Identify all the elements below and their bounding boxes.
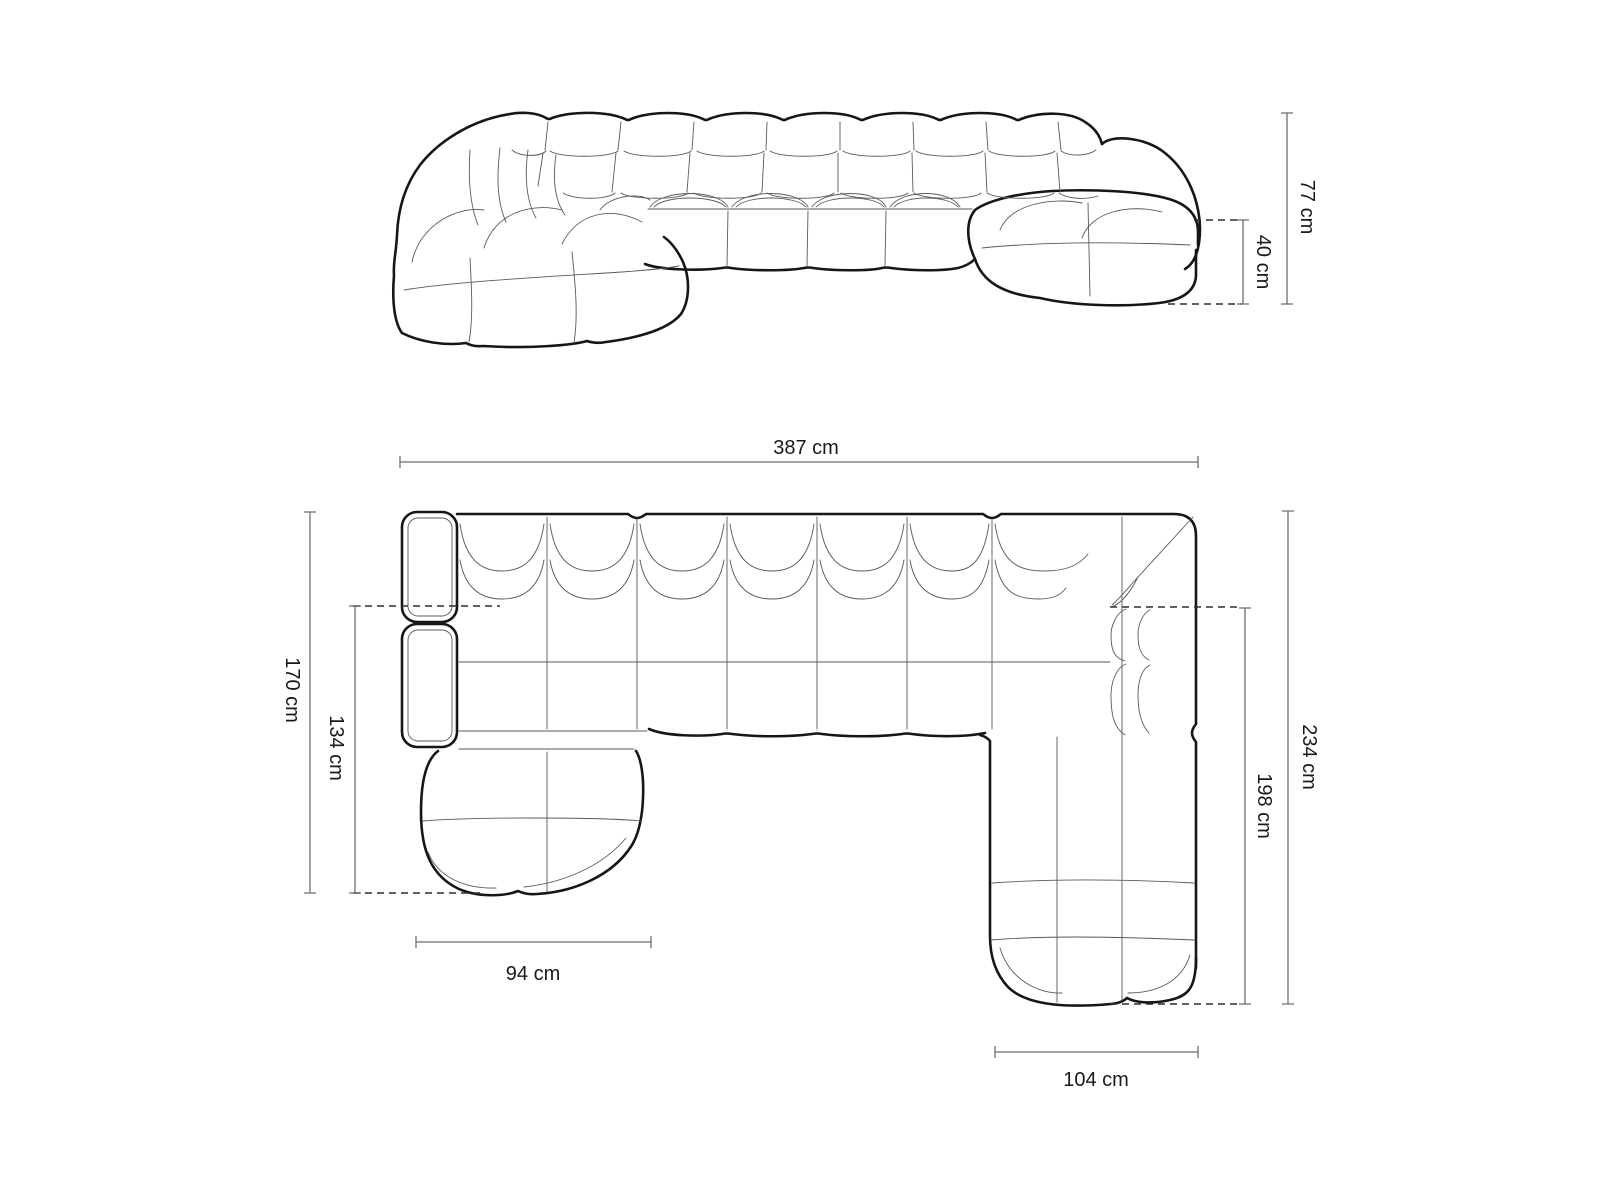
top-backrest-wave-row1 bbox=[460, 524, 1088, 571]
sofa-top-quilting bbox=[408, 517, 1195, 1002]
sofa-dimension-diagram: 77 cm 40 cm bbox=[0, 0, 1600, 1200]
dim-label-left-depth: 170 cm bbox=[281, 657, 303, 723]
front-tuft-verticals-upper bbox=[545, 122, 1061, 150]
front-left-chaise-bubbles bbox=[412, 208, 642, 262]
top-left-arm-lower bbox=[402, 624, 457, 747]
top-arm-cushion-inner-lower bbox=[408, 630, 452, 741]
top-corner-diagonal bbox=[1112, 517, 1193, 607]
front-seat-band bbox=[648, 209, 972, 266]
dim-label-right-depth: 234 cm bbox=[1298, 724, 1320, 790]
top-dimension-lines bbox=[304, 456, 1294, 1058]
top-backrest-wave-row2 bbox=[460, 560, 1066, 599]
top-seat-front-scallop bbox=[649, 729, 985, 736]
dim-label-left-chaise-depth: 134 cm bbox=[325, 715, 347, 781]
dim-line-right-chaise-width bbox=[995, 1046, 1198, 1058]
front-left-chaise-outline bbox=[402, 237, 688, 347]
dim-line-left-depth bbox=[304, 512, 316, 893]
sofa-front-tufting bbox=[404, 122, 1190, 343]
dim-label-total-height: 77 cm bbox=[1296, 180, 1318, 234]
top-back-band-and-right-edge bbox=[457, 514, 1196, 968]
sofa-top-outline bbox=[402, 512, 1196, 1006]
dim-label-right-chaise-width: 104 cm bbox=[1063, 1069, 1129, 1091]
top-right-chaise-outline bbox=[980, 735, 1196, 1006]
dim-line-seat-height bbox=[1237, 220, 1249, 304]
front-left-chaise-seams bbox=[404, 252, 679, 343]
front-seat-bottom-scallop bbox=[645, 259, 975, 270]
dim-label-seat-height: 40 cm bbox=[1252, 235, 1274, 289]
top-right-dashed-lines bbox=[1110, 607, 1238, 1004]
front-view: 77 cm 40 cm bbox=[393, 113, 1318, 347]
front-tuft-row1 bbox=[512, 150, 1096, 156]
dim-line-left-chaise-depth bbox=[349, 606, 361, 893]
front-seat-cushion-arcs bbox=[600, 194, 960, 211]
front-corner-fan bbox=[469, 148, 565, 225]
front-tuft-verticals-lower bbox=[538, 153, 1060, 192]
dim-line-right-chaise-depth bbox=[1239, 608, 1251, 1004]
dim-label-left-chaise-width: 94 cm bbox=[506, 963, 560, 985]
top-right-chaise-seams bbox=[991, 880, 1195, 993]
front-right-arm bbox=[1102, 138, 1200, 269]
front-back-top-scallops bbox=[510, 113, 1102, 144]
dim-label-total-width: 387 cm bbox=[773, 437, 839, 459]
dim-line-right-depth bbox=[1282, 511, 1294, 1004]
front-right-chaise-seams bbox=[982, 201, 1190, 296]
front-seat-height-dashed-lines bbox=[1168, 220, 1242, 304]
top-left-chaise-outline bbox=[421, 751, 643, 895]
dim-line-left-chaise-width bbox=[416, 936, 651, 948]
sofa-front-outline bbox=[393, 113, 1200, 347]
front-right-chaise-bottom bbox=[975, 250, 1196, 305]
top-right-column-waves bbox=[1111, 609, 1150, 735]
sofa-dimension-diagram-page: 77 cm 40 cm bbox=[0, 0, 1600, 1200]
top-arm-cushion-inner-upper bbox=[408, 518, 452, 616]
front-left-silhouette bbox=[393, 114, 510, 333]
top-view: 387 cm 170 cm 134 cm 94 cm 234 cm 198 cm… bbox=[281, 437, 1320, 1091]
dim-line-total-height bbox=[1281, 113, 1293, 304]
dim-label-right-chaise-depth: 198 cm bbox=[1253, 773, 1275, 839]
top-seat-horizontal-seams bbox=[459, 662, 1110, 731]
